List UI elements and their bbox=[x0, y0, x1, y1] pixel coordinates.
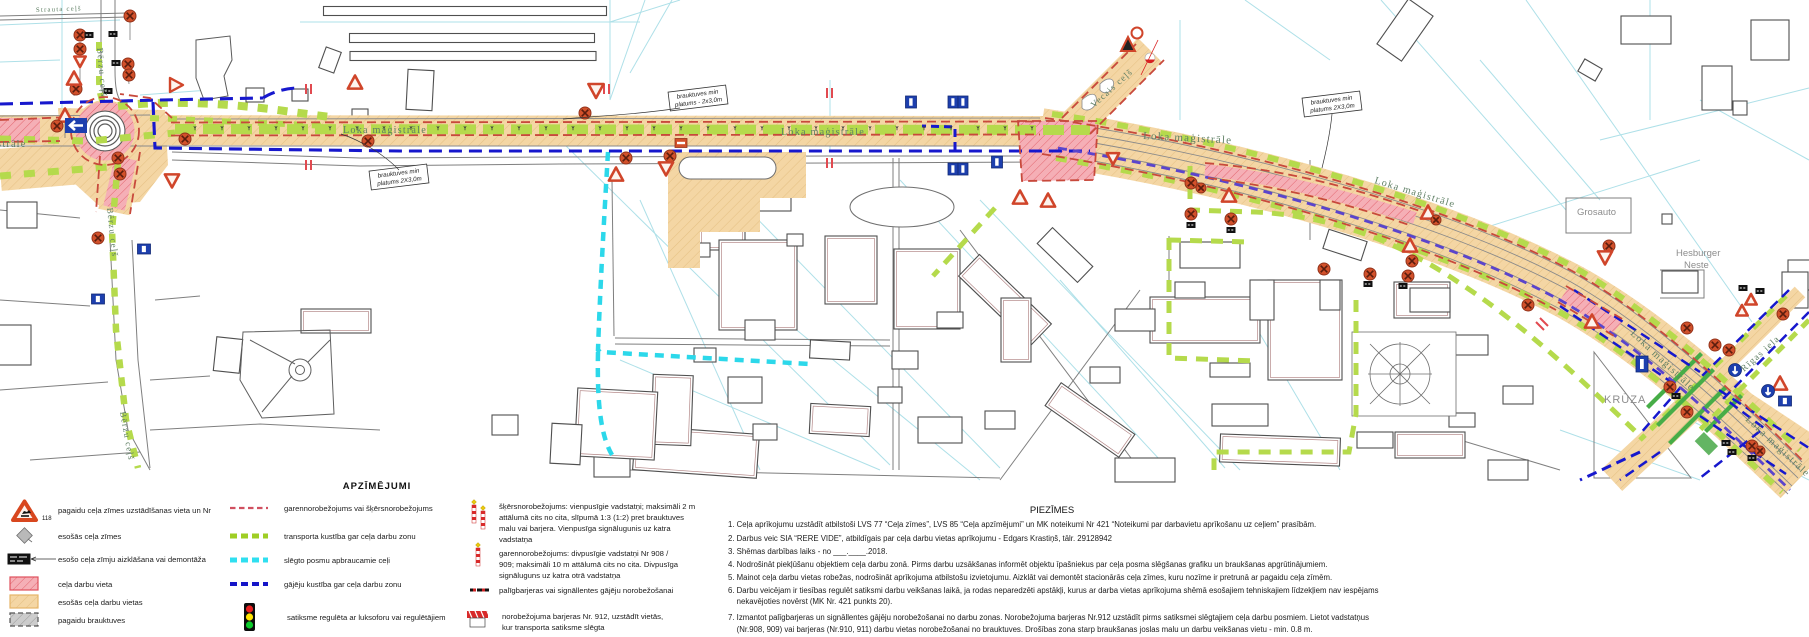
svg-text:Grosauto: Grosauto bbox=[1577, 207, 1616, 218]
svg-text:norobežojuma barjeras Nr. 912,: norobežojuma barjeras Nr. 912, uzstādīt … bbox=[502, 612, 663, 621]
svg-text:transporta kustība gar ceļa da: transporta kustība gar ceļa darbu zonu bbox=[284, 532, 416, 541]
svg-text:esošās ceļa zīmes: esošās ceļa zīmes bbox=[58, 532, 121, 541]
svg-text:Loka maģistrāle: Loka maģistrāle bbox=[781, 127, 865, 138]
svg-text:esošās ceļa darbu vietas: esošās ceļa darbu vietas bbox=[58, 598, 143, 607]
svg-text:118: 118 bbox=[42, 516, 52, 522]
svg-text:7. Izmantot palīgbarjeras un s: 7. Izmantot palīgbarjeras un signāllente… bbox=[728, 613, 1369, 622]
svg-text:Loka maģistrāle: Loka maģistrāle bbox=[343, 125, 427, 136]
svg-text:maģistrāle: maģistrāle bbox=[0, 139, 26, 150]
svg-text:4. Nodrošināt piekļūšanu objek: 4. Nodrošināt piekļūšanu objektiem ceļa … bbox=[728, 560, 1327, 569]
svg-text:pagaidu ceļa zīmes uzstādīšana: pagaidu ceļa zīmes uzstādīšanas vieta un… bbox=[58, 506, 211, 515]
svg-text:nekavējoties novērst (MK Nr. 4: nekavējoties novērst (MK Nr. 421 punkts … bbox=[728, 597, 892, 606]
svg-text:garennorobežojums vai šķērsnor: garennorobežojums vai šķērsnorobežojums bbox=[284, 504, 433, 513]
svg-text:palīgbarjeras vai signāllentes: palīgbarjeras vai signāllentes gājēju no… bbox=[499, 586, 674, 595]
svg-text:šķērsnorobežojums: vienpusīgie: šķērsnorobežojums: vienpusīgie vadstatņi… bbox=[499, 502, 695, 511]
svg-text:PIEZĪMES: PIEZĪMES bbox=[1030, 505, 1074, 516]
svg-text:vadstatņa: vadstatņa bbox=[499, 535, 533, 544]
svg-text:6. Darbu veicējam ir tiesības: 6. Darbu veicējam ir tiesības regulēt sa… bbox=[728, 586, 1379, 595]
svg-text:909; maksimāli 10 m attālumā c: 909; maksimāli 10 m attālumā cits no cit… bbox=[499, 560, 679, 569]
svg-text:Neste: Neste bbox=[1684, 260, 1709, 271]
svg-text:garennorobežojums: divpusīgie: garennorobežojums: divpusīgie vadstatņi … bbox=[499, 549, 669, 558]
svg-text:APZĪMĒJUMI: APZĪMĒJUMI bbox=[343, 481, 412, 492]
svg-text:slēgto posmu apbraucamie ceļi: slēgto posmu apbraucamie ceļi bbox=[284, 556, 390, 565]
svg-text:3. Shēmas darbības laiks - no: 3. Shēmas darbības laiks - no ___.____.2… bbox=[728, 547, 888, 556]
svg-text:5. Mainot ceļa darbu vietas ro: 5. Mainot ceļa darbu vietas robežas, nod… bbox=[728, 573, 1332, 582]
svg-text:attālumā cits no cita, slīpumā: attālumā cits no cita, slīpumā 1:3 (1:2)… bbox=[499, 513, 684, 522]
svg-text:KRŪZA: KRŪZA bbox=[1604, 394, 1646, 406]
svg-text:(Nr.908, 909) vai barjeras (Nr: (Nr.908, 909) vai barjeras (Nr.910, 911)… bbox=[728, 625, 1313, 634]
svg-text:1. Ceļa aprīkojumu uzstādīt at: 1. Ceļa aprīkojumu uzstādīt atbilstoši L… bbox=[728, 520, 1316, 529]
svg-text:malu vai barjera. Vienpusīga s: malu vai barjera. Vienpusīga signāluguni… bbox=[499, 524, 671, 533]
svg-text:Hesburger: Hesburger bbox=[1676, 248, 1720, 259]
svg-text:ceļa darbu vieta: ceļa darbu vieta bbox=[58, 580, 113, 589]
svg-text:gājēju kustība gar ceļa darbu: gājēju kustība gar ceļa darbu zonu bbox=[284, 580, 402, 589]
svg-text:signāluguns uz katra otrā vads: signāluguns uz katra otrā vadstatņa bbox=[499, 571, 621, 580]
svg-text:2. Darbus veic SIA “RERE VIDE”: 2. Darbus veic SIA “RERE VIDE”, atbildīg… bbox=[728, 534, 1112, 543]
svg-text:pagaidu brauktuves: pagaidu brauktuves bbox=[58, 616, 125, 625]
svg-text:esošo ceļa zīmju aizklāšana va: esošo ceļa zīmju aizklāšana vai demontāž… bbox=[58, 555, 207, 564]
svg-text:satiksme regulēta ar luksoforu: satiksme regulēta ar luksoforu vai regul… bbox=[287, 613, 446, 622]
svg-text:kur transporta satiksme slēgta: kur transporta satiksme slēgta bbox=[502, 623, 605, 632]
